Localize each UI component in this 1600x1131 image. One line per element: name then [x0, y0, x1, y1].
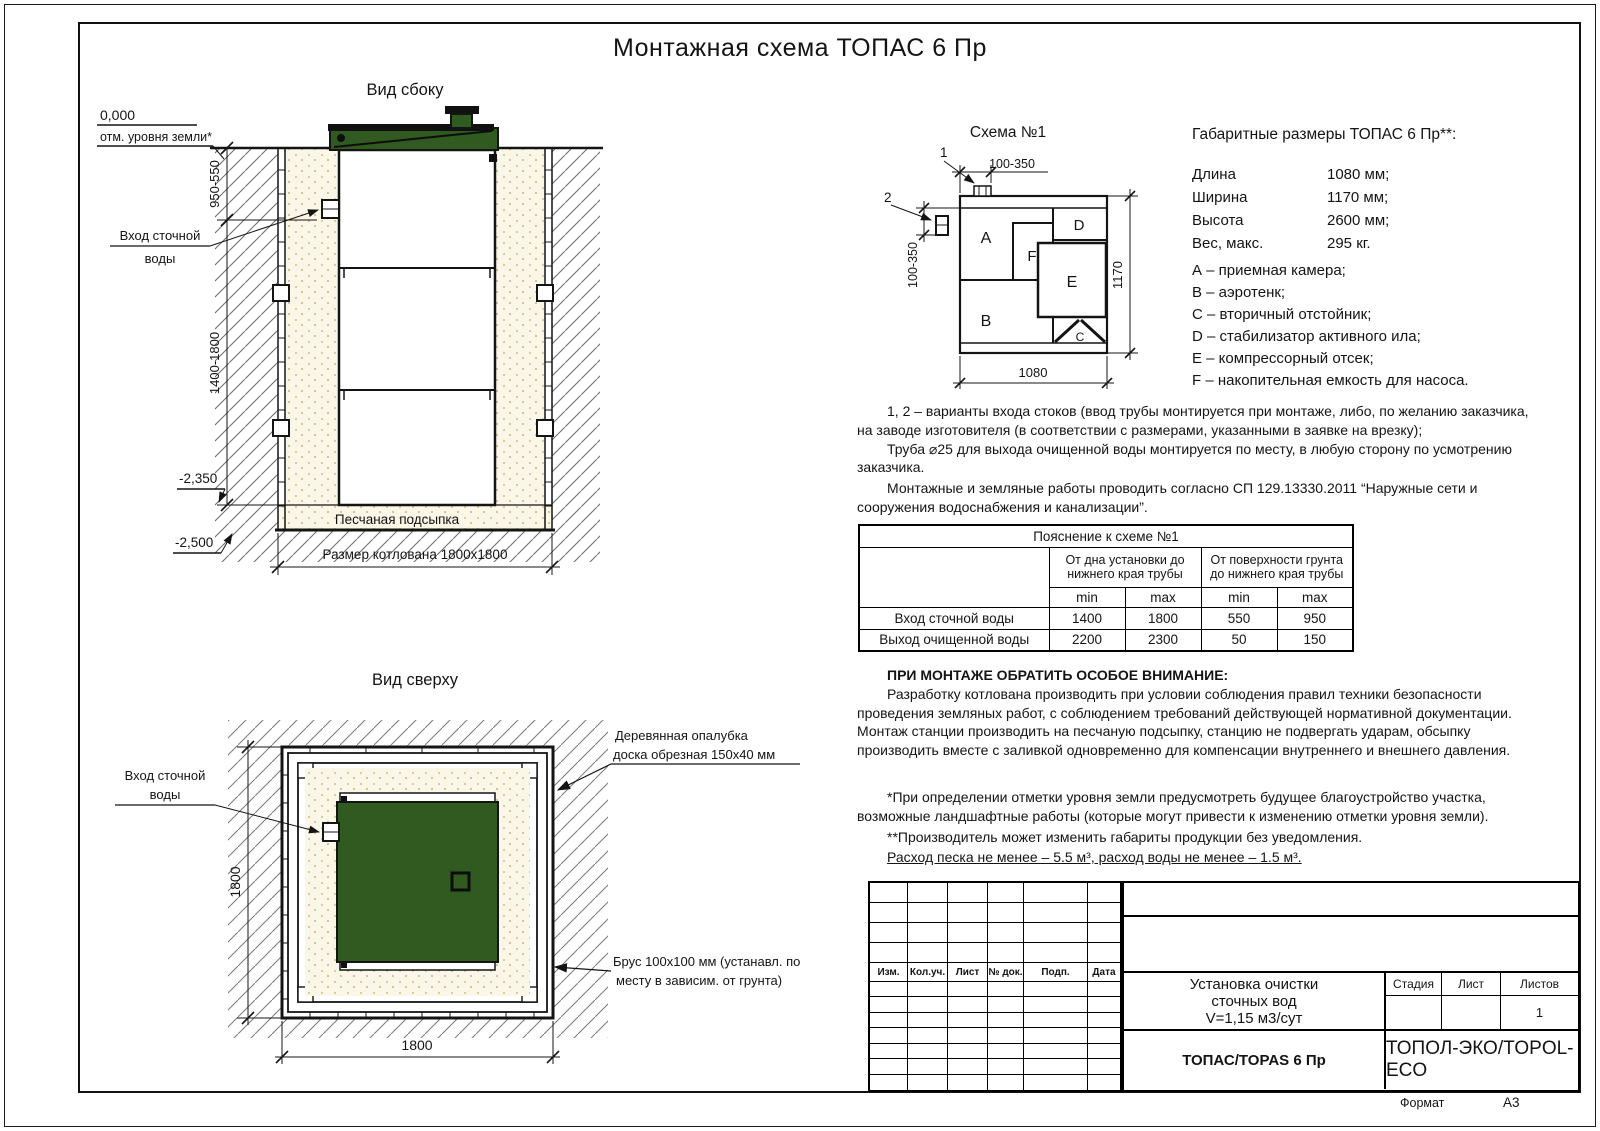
level-2350: -2,350	[179, 471, 217, 486]
revision-cell	[988, 1028, 1024, 1043]
row-label: Выход очищенной воды	[859, 629, 1049, 651]
sheet-header: Лист	[1442, 973, 1501, 996]
attention-block: ПРИ МОНТАЖЕ ОБРАТИТЬ ОСОБОЕ ВНИМАНИЕ: Ра…	[857, 666, 1541, 760]
notes-paragraph-2: Монтажные и земляные работы проводить со…	[857, 479, 1541, 517]
schema-stub1	[974, 186, 991, 196]
schema-dim-left: 100-350	[906, 242, 920, 288]
revision-cell	[1088, 923, 1120, 943]
spec-label: Длина	[1192, 166, 1327, 183]
revision-cell	[1024, 1075, 1088, 1090]
attention-title: ПРИ МОНТАЖЕ ОБРАТИТЬ ОСОБОЕ ВНИМАНИЕ:	[857, 666, 1541, 685]
spec-value: 1170 мм;	[1327, 189, 1388, 206]
revision-cell	[908, 1075, 948, 1090]
drawing-sheet: Монтажная схема ТОПАС 6 Пр	[0, 0, 1600, 1131]
revision-cell	[1088, 943, 1120, 963]
inlet-label-line1: Вход сточной	[120, 228, 201, 243]
schema-dim-top: 100-350	[989, 157, 1035, 171]
cell-value: 50	[1201, 629, 1277, 651]
revision-cell	[1024, 982, 1088, 997]
format-value: А3	[1503, 1095, 1520, 1110]
revision-cell	[988, 1075, 1024, 1090]
footnote-manufacturer: **Производитель может изменить габариты …	[857, 828, 1541, 847]
doc-title-line1: Установка очистки	[1190, 976, 1319, 993]
title-block-empty-row-2	[1124, 917, 1578, 973]
spec-row: Ширина 1170 мм;	[1192, 189, 1522, 206]
revision-cell	[1024, 923, 1088, 943]
table-min-header: min	[1049, 587, 1125, 607]
inlet-pipe-stub	[322, 200, 339, 218]
doc-title-line2: сточных вод	[1211, 993, 1296, 1010]
top-view-title: Вид сверху	[372, 671, 459, 689]
revision-cell	[948, 1044, 988, 1059]
cell-value: 2300	[1125, 629, 1201, 651]
revision-header-cell: Подп.	[1024, 963, 1088, 982]
spec-label: Ширина	[1192, 189, 1327, 206]
revision-cell	[870, 1075, 908, 1090]
revision-table: Изм.Кол.уч.Лист№ док.Подп.Дата	[868, 881, 1122, 1092]
doc-title-line3: V=1,15 м3/сут	[1206, 1010, 1303, 1027]
spec-row: Высота 2600 мм;	[1192, 212, 1522, 229]
schema-stub2	[936, 216, 948, 235]
lid-lock-icon	[337, 134, 345, 142]
lid-corner-mark-top	[341, 796, 347, 802]
revision-cell	[1088, 1028, 1120, 1043]
revision-cell	[1088, 982, 1120, 997]
cell-value: 1400	[1049, 607, 1125, 629]
revision-cell	[908, 1044, 948, 1059]
table-group1-header: От дна установки до нижнего края трубы	[1049, 547, 1201, 587]
beam-label-line2: месту в зависим. от грунта)	[616, 973, 782, 988]
revision-cell	[1024, 943, 1088, 963]
table-row: Вход сточной воды 1400 1800 550 950	[859, 607, 1353, 629]
side-view-drawing: Вид сбоку 0,000 отм. уровня земли* 950-5…	[85, 75, 640, 620]
revision-cell	[1088, 997, 1120, 1012]
revision-header-cell: Дата	[1088, 963, 1120, 982]
revision-cell	[1024, 1044, 1088, 1059]
inlet-label-line2: воды	[145, 251, 176, 266]
cell-value: 150	[1277, 629, 1353, 651]
format-label: Формат	[1400, 1096, 1444, 1110]
revision-cell	[870, 903, 908, 923]
revision-cell	[1024, 1059, 1088, 1074]
dim-950-550: 950-550	[207, 160, 222, 208]
dim-1800-horizontal: 1800	[401, 1037, 432, 1053]
compartment-c: C	[1076, 330, 1085, 344]
revision-cell	[1088, 903, 1120, 923]
callout-1: 1	[940, 145, 948, 160]
spec-row: Вес, макс. 295 кг.	[1192, 235, 1522, 252]
title-block-bottom-row: ТОПАС/TOPAS 6 Пр ТОПОЛ-ЭКО/TOPOL-ECO	[1124, 1031, 1578, 1089]
tank-lid-top	[337, 802, 498, 962]
inlet-label-line2: воды	[150, 787, 181, 802]
spec-label: Вес, макс.	[1192, 235, 1327, 252]
explanation-table: Пояснение к схеме №1 От дна установки до…	[858, 524, 1354, 652]
revision-cell	[1088, 1075, 1120, 1090]
revision-cell	[870, 1028, 908, 1043]
revision-cell	[908, 1013, 948, 1028]
legend-line: F – накопительная емкость для насоса.	[1192, 372, 1552, 389]
revision-cell	[908, 883, 948, 903]
schema1-drawing: Схема №1	[860, 115, 1180, 405]
revision-cell	[908, 1059, 948, 1074]
revision-cell	[948, 1028, 988, 1043]
revision-cell	[988, 903, 1024, 923]
revision-cell	[908, 982, 948, 997]
revision-cell	[988, 883, 1024, 903]
revision-cell	[948, 1013, 988, 1028]
revision-cell	[988, 997, 1024, 1012]
schema-dim-right: 1170	[1110, 261, 1125, 289]
attention-body: Разработку котлована производить при усл…	[857, 685, 1541, 760]
note-inlet-variants: 1, 2 – варианты входа стоков (ввод трубы…	[857, 402, 1541, 440]
revision-cell	[870, 997, 908, 1012]
table-min-header: min	[1201, 587, 1277, 607]
compartment-e: E	[1067, 274, 1078, 291]
revision-cell	[948, 982, 988, 997]
beam-label-line1: Брус 100х100 мм (устанавл. по	[613, 954, 800, 969]
revision-cell	[988, 1044, 1024, 1059]
pit-size-dim: Размер котлована 1800х1800	[323, 547, 508, 562]
callout-2: 2	[884, 190, 892, 205]
schema1-title: Схема №1	[970, 124, 1046, 141]
revision-cell	[1024, 1013, 1088, 1028]
company-cell: ТОПОЛ-ЭКО/TOPOL-ECO	[1386, 1031, 1578, 1089]
revision-cell	[948, 883, 988, 903]
revision-cell	[1088, 1059, 1120, 1074]
revision-cell	[870, 943, 908, 963]
spec-value: 1080 мм;	[1327, 166, 1389, 183]
revision-cell	[870, 982, 908, 997]
revision-cell	[870, 923, 908, 943]
revision-cell	[988, 1059, 1024, 1074]
revision-cell	[870, 883, 908, 903]
footnotes-block: *При определении отметки уровня земли пр…	[857, 788, 1541, 846]
model-cell: ТОПАС/TOPAS 6 Пр	[1124, 1031, 1386, 1089]
table-title: Пояснение к схеме №1	[859, 525, 1353, 547]
compartment-b: B	[981, 313, 992, 330]
legend-line: Е – компрессорный отсек;	[1192, 350, 1552, 367]
legend-line: В – аэротенк;	[1192, 284, 1552, 301]
revision-cell	[1024, 903, 1088, 923]
table-max-header: max	[1125, 587, 1201, 607]
sheets-header: Листов	[1501, 973, 1578, 996]
legend-line: А – приемная камера;	[1192, 262, 1552, 279]
spec-value: 2600 мм;	[1327, 212, 1389, 229]
revision-cell	[948, 943, 988, 963]
table-group2-header: От поверхности грунта до нижнего края тр…	[1201, 547, 1353, 587]
revision-cell	[1024, 1028, 1088, 1043]
footnote-land-level: *При определении отметки уровня земли пр…	[857, 788, 1541, 826]
top-view-drawing: Вид сверху 1800 1800 Вход сточной воды Д…	[85, 660, 805, 1080]
title-block-main-row: Установка очистки сточных вод V=1,15 м3/…	[1124, 973, 1578, 1031]
revision-cell	[988, 982, 1024, 997]
revision-cell	[988, 1013, 1024, 1028]
revision-header-cell: Лист	[948, 963, 988, 982]
cell-value: 950	[1277, 607, 1353, 629]
schema-dim-bottom: 1080	[1019, 365, 1048, 380]
row-label: Вход сточной воды	[859, 607, 1049, 629]
revision-cell	[1088, 883, 1120, 903]
revision-cell	[908, 923, 948, 943]
revision-cell	[1088, 1013, 1120, 1028]
revision-cell	[870, 1059, 908, 1074]
title-block: Установка очистки сточных вод V=1,15 м3/…	[1122, 881, 1580, 1092]
vent-cap	[445, 106, 479, 114]
dim-1400-1800: 1400-1800	[207, 332, 222, 394]
compartment-a: A	[981, 230, 992, 247]
notes-paragraph-1: 1, 2 – варианты входа стоков (ввод трубы…	[857, 402, 1541, 477]
lid-corner-mark-bottom	[341, 962, 347, 968]
level-zero: 0,000	[100, 107, 135, 123]
stage-value	[1386, 996, 1442, 1029]
table-row: Выход очищенной воды 2200 2300 50 150	[859, 629, 1353, 651]
legend-line: С – вторичный отстойник;	[1192, 306, 1552, 323]
revision-cell	[908, 903, 948, 923]
table-max-header: max	[1277, 587, 1353, 607]
dim-1800-vertical: 1800	[227, 866, 243, 897]
note-outlet-pipe: Труба ⌀25 для выхода очищенной воды монт…	[857, 440, 1541, 478]
consumption-text: Расход песка не менее – 5.5 м³, расход в…	[887, 849, 1302, 865]
revision-cell	[948, 903, 988, 923]
revision-header-cell: № док.	[988, 963, 1024, 982]
table-corner-cell	[859, 547, 1049, 607]
specs-title: Габаритные размеры ТОПАС 6 Пр**:	[1192, 126, 1456, 144]
level-zero-label: отм. уровня земли*	[100, 130, 212, 144]
revision-cell	[948, 1075, 988, 1090]
revision-cell	[908, 1028, 948, 1043]
compartment-d: D	[1074, 217, 1085, 234]
revision-cell	[948, 997, 988, 1012]
revision-cell	[908, 997, 948, 1012]
spec-row: Длина 1080 мм;	[1192, 166, 1522, 183]
revision-cell	[988, 923, 1024, 943]
side-view-title: Вид сбоку	[367, 81, 445, 99]
revision-cell	[908, 943, 948, 963]
stage-header: Стадия	[1386, 973, 1442, 996]
sheets-value: 1	[1501, 996, 1578, 1029]
cell-value: 1800	[1125, 607, 1201, 629]
revision-cell	[1024, 883, 1088, 903]
revision-cell	[988, 943, 1024, 963]
revision-header-cell: Изм.	[870, 963, 908, 982]
revision-cell	[948, 1059, 988, 1074]
cell-value: 2200	[1049, 629, 1125, 651]
stage-sheet-grid: Стадия Лист Листов 1	[1386, 973, 1578, 1029]
level-2500: -2,500	[175, 535, 213, 550]
revision-cell	[870, 1044, 908, 1059]
sand-label: Песчаная подсыпка	[335, 512, 460, 527]
title-block-empty-row-1	[1124, 883, 1578, 917]
cell-value: 550	[1201, 607, 1277, 629]
revision-header-cell: Кол.уч.	[908, 963, 948, 982]
revision-cell	[870, 1013, 908, 1028]
vent-stem	[451, 114, 472, 128]
revision-cell	[948, 923, 988, 943]
page-title: Монтажная схема ТОПАС 6 Пр	[560, 34, 1040, 63]
tank-body	[339, 150, 495, 505]
revision-cell	[1024, 997, 1088, 1012]
compartment-f: F	[1027, 248, 1036, 265]
consumption-note: Расход песка не менее – 5.5 м³, расход в…	[887, 849, 1302, 865]
formwork-label-line2: доска обрезная 150х40 мм	[613, 747, 775, 762]
inlet-label-line1: Вход сточной	[125, 768, 206, 783]
formwork-label-line1: Деревянная опалубка	[615, 728, 749, 743]
revision-cell	[1088, 1044, 1120, 1059]
document-title-cell: Установка очистки сточных вод V=1,15 м3/…	[1124, 973, 1386, 1029]
legend-line: D – стабилизатор активного ила;	[1192, 328, 1552, 345]
spec-value: 295 кг.	[1327, 235, 1371, 252]
spec-label: Высота	[1192, 212, 1327, 229]
inlet-pipe-stub	[323, 823, 339, 841]
note-sp-standard: Монтажные и земляные работы проводить со…	[857, 479, 1541, 517]
sheet-value	[1442, 996, 1501, 1029]
